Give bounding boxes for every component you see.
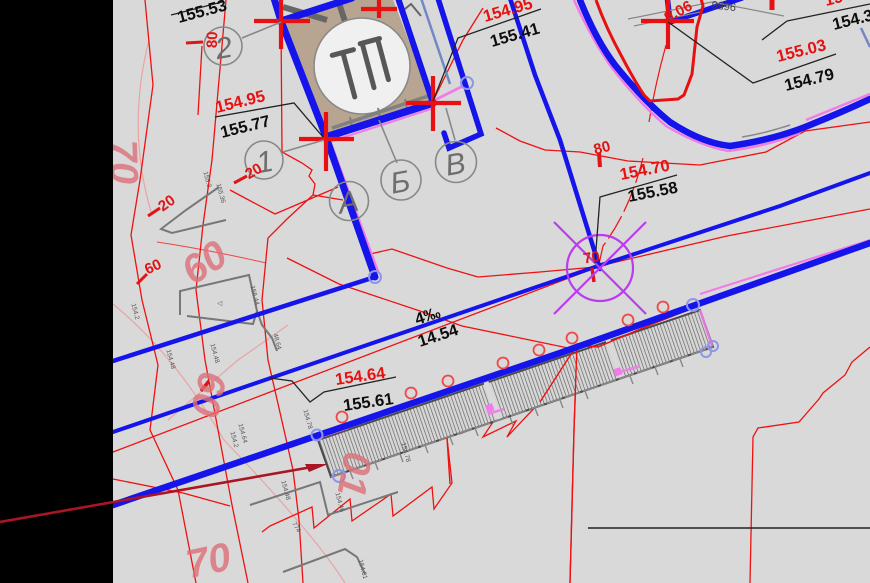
svg-text:9656: 9656 bbox=[711, 0, 737, 13]
svg-text:70: 70 bbox=[182, 535, 235, 583]
svg-text:80: 80 bbox=[204, 31, 222, 48]
svg-text:70: 70 bbox=[582, 248, 601, 268]
